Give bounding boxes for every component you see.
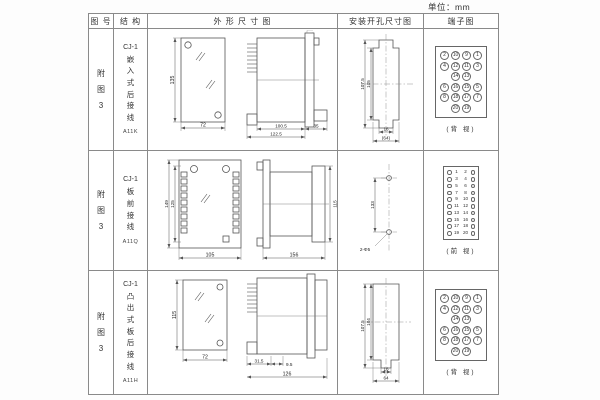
terminal-cell-row3: 2109141211314136161558181772019 (背 视)	[424, 271, 498, 394]
fig-no-cell-row1: 附图3	[89, 29, 114, 151]
dim-label: 105	[205, 252, 214, 258]
fins	[247, 44, 257, 72]
series-label: CJ-1	[123, 176, 138, 183]
dim-label: 100.5	[275, 123, 287, 128]
dim-label: 9.5	[286, 362, 293, 367]
structure-label: 嵌入式后接线	[127, 54, 135, 124]
dim-label: 125	[170, 199, 175, 207]
dim-label: 16	[383, 126, 389, 131]
terminal-cell-row1: 2109141211314136161558181772019 (背 视)	[424, 29, 498, 151]
view-label: (背 视)	[446, 366, 475, 376]
header-structure: 结 构	[114, 14, 148, 29]
header-terminal-diagram: 端子图	[424, 14, 498, 29]
view-label: (前 视)	[446, 245, 475, 255]
document-page: 单位：mm 图 号 结 构 外 形 尺 寸 图 安装开孔尺寸图 端子图 附图3 …	[0, 0, 600, 400]
dim-label: 115	[172, 311, 178, 319]
model-code: A11K	[123, 129, 138, 135]
unit-label: 单位：mm	[428, 1, 470, 13]
outline-diagram-a11k: 135 72 100.5	[149, 30, 337, 150]
header-outline-dims: 外 形 尺 寸 图	[148, 14, 338, 29]
mounting-cell-row2: 133 2-Φ5	[338, 151, 424, 271]
fig-no-cell-row3: 附图3	[89, 271, 114, 394]
structure-label: 凸出式板后接线	[127, 291, 135, 372]
outline-cell-row1: 135 72 100.5	[148, 29, 338, 151]
fig-no-cell-row2: 附图3	[89, 151, 114, 271]
dim-label: 149	[164, 199, 169, 207]
dim-label: (64)	[381, 135, 390, 140]
mounting-diagram-a11q: 133 2-Φ5	[339, 152, 423, 270]
dim-label: 72	[202, 355, 208, 361]
dim-label: 35	[313, 123, 319, 128]
fins	[247, 284, 257, 312]
hole-callout: 2-Φ5	[359, 247, 370, 252]
series-label: CJ-1	[123, 281, 138, 288]
model-code: A11Q	[123, 239, 139, 245]
structure-cell-row3: CJ-1 凸出式板后接线 A11H	[114, 271, 148, 394]
terminal-diagram: 1234567891011121314151617181920	[443, 166, 479, 240]
dim-label: 126	[282, 372, 291, 378]
outline-cell-row3: 115 72 31.5	[148, 271, 338, 394]
fig-no-row1: 附图3	[97, 66, 105, 114]
hatch-marks	[196, 52, 215, 89]
fig-no-row3: 附图3	[97, 309, 105, 357]
dim-label: 107.5	[360, 320, 365, 332]
terminal-cell-row2: 1234567891011121314151617181920 (前 视)	[424, 151, 498, 271]
dim-label: 135	[170, 75, 176, 84]
dim-label: 104	[366, 318, 371, 326]
dim-label: 105	[366, 79, 371, 87]
mounting-cell-row1: 107.5 105 16 (64)	[338, 29, 424, 151]
mounting-cell-row3: 107.5 104 16 64	[338, 271, 424, 394]
spec-table: 图 号 结 构 外 形 尺 寸 图 安装开孔尺寸图 端子图 附图3 CJ-1 嵌…	[88, 13, 499, 395]
structure-row3: CJ-1 凸出式板后接线 A11H	[123, 281, 138, 384]
dim-label: 107.5	[360, 77, 365, 89]
structure-row2: CJ-1 板前接线 A11Q	[123, 176, 139, 245]
dim-label: 72	[200, 122, 206, 128]
fig-no-row2: 附图3	[97, 187, 105, 235]
outline-diagram-a11q: 149 125 105 156 115	[149, 152, 337, 270]
dim-label: 64	[383, 376, 389, 381]
mounting-diagram-a11k: 107.5 105 16 (64)	[339, 30, 423, 150]
structure-row1: CJ-1 嵌入式后接线 A11K	[123, 44, 138, 136]
terminal-diagram: 2109141211314136161558181772019	[435, 289, 487, 361]
structure-cell-row1: CJ-1 嵌入式后接线 A11K	[114, 29, 148, 151]
structure-cell-row2: CJ-1 板前接线 A11Q	[114, 151, 148, 271]
structure-label: 板前接线	[127, 186, 135, 233]
mounting-diagram-a11h: 107.5 104 16 64	[339, 272, 423, 393]
dim-label: 133	[370, 200, 375, 208]
header-mounting-dims: 安装开孔尺寸图	[338, 14, 424, 29]
dim-label: 16	[383, 367, 389, 372]
view-label: (背 视)	[446, 123, 475, 133]
terminal-strips	[181, 172, 239, 233]
outline-cell-row2: 149 125 105 156 115	[148, 151, 338, 271]
terminal-diagram: 2109141211314136161558181772019	[435, 46, 487, 118]
dim-label: 31.5	[254, 359, 263, 364]
header-fig-no: 图 号	[89, 14, 114, 29]
series-label: CJ-1	[123, 44, 138, 51]
model-code: A11H	[123, 378, 138, 384]
dim-label: 115	[332, 199, 337, 207]
outline-diagram-a11h: 115 72 31.5	[149, 272, 337, 393]
dim-label: 122.5	[270, 131, 282, 136]
dim-label: 156	[289, 252, 298, 258]
